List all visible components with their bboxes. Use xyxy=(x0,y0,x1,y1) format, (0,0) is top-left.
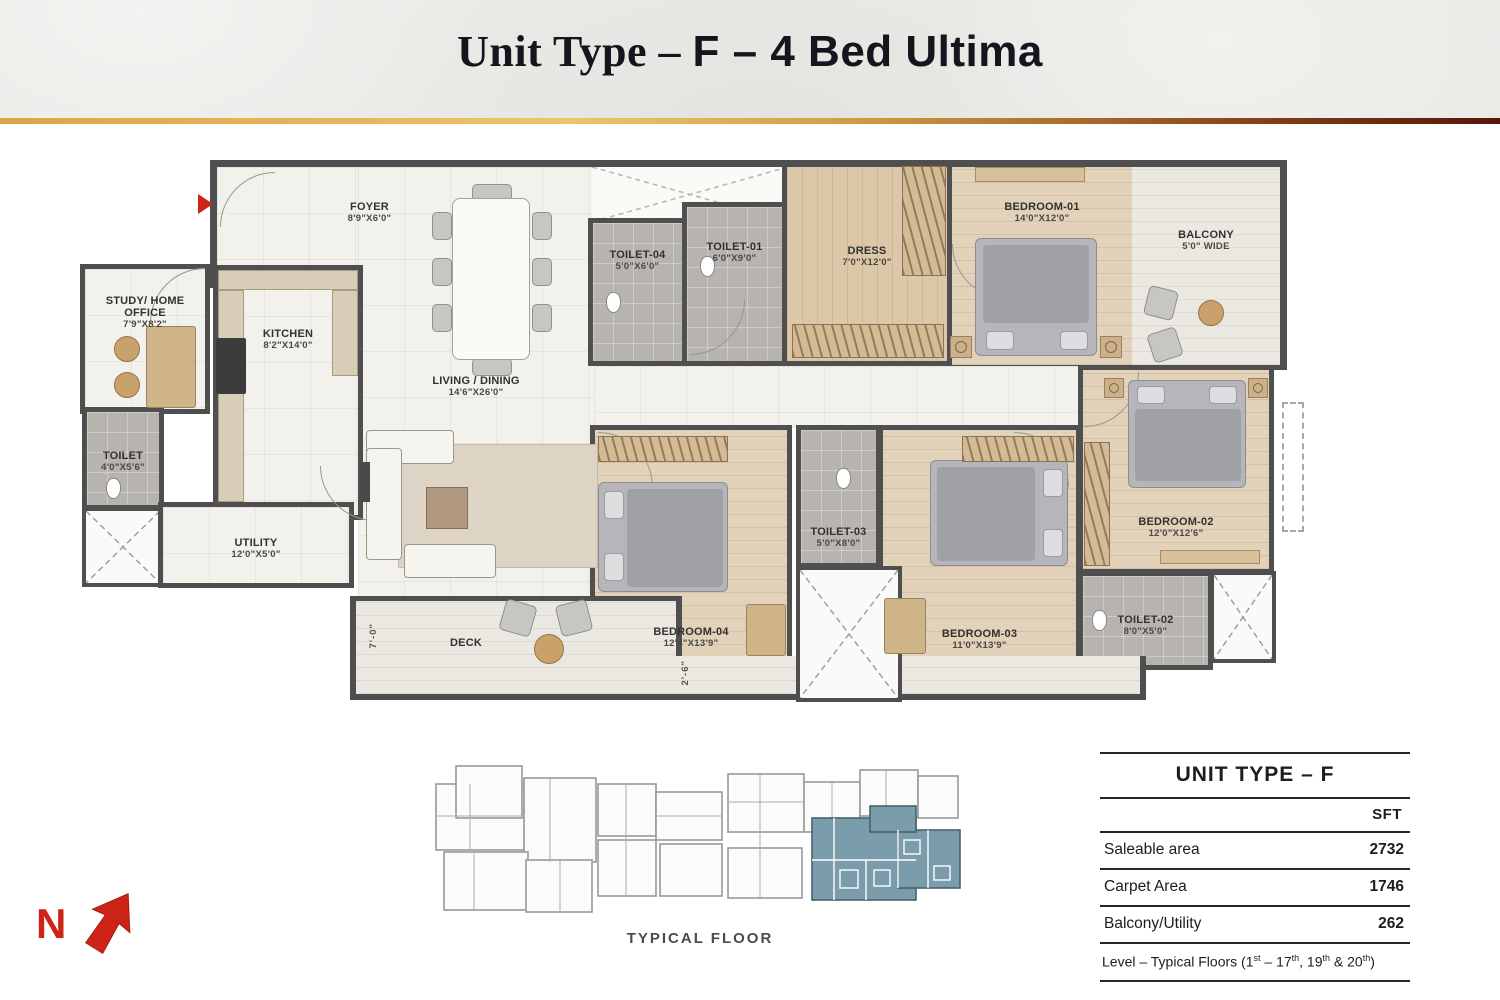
north-arrow-icon xyxy=(68,878,148,974)
room-label: TOILET4'0"X5'6" xyxy=(87,450,159,473)
wc-icon xyxy=(836,468,851,489)
corridor xyxy=(594,366,1080,428)
table-icon xyxy=(534,634,564,664)
chair-icon xyxy=(114,336,140,362)
room-label: BALCONY5'0" WIDE xyxy=(1132,229,1280,252)
row-value: 2732 xyxy=(1370,841,1404,859)
table-row: Balcony/Utility 262 xyxy=(1100,907,1410,944)
wardrobe-icon xyxy=(1084,442,1110,566)
nightstand-icon xyxy=(1248,378,1268,398)
bed-icon xyxy=(930,460,1068,566)
bed-icon xyxy=(598,482,728,592)
row-label: Saleable area xyxy=(1104,841,1200,859)
deck-strip-dim: 2'-6" xyxy=(680,660,691,686)
sofa-icon xyxy=(404,544,496,578)
kitchen-counter xyxy=(332,290,358,376)
stove-icon xyxy=(216,338,246,394)
room-label: TOILET-045'0"X6'0" xyxy=(593,249,682,272)
wc-icon xyxy=(606,292,621,313)
chair-icon xyxy=(114,372,140,398)
nightstand-icon xyxy=(1104,378,1124,398)
wardrobe-icon xyxy=(598,436,728,462)
table-icon xyxy=(1198,300,1224,326)
table-footer: Level – Typical Floors (1st – 17th, 19th… xyxy=(1100,944,1410,982)
room-label: DECK xyxy=(386,637,546,649)
nightstand-icon xyxy=(1100,336,1122,358)
tv-unit-icon xyxy=(360,462,370,502)
wc-icon xyxy=(106,478,121,499)
row-label: Carpet Area xyxy=(1104,878,1187,896)
coffee-table-icon xyxy=(426,487,468,529)
wardrobe-icon xyxy=(792,324,944,358)
study-table-icon xyxy=(146,326,196,408)
room-toilet-04: TOILET-045'0"X6'0" xyxy=(588,218,687,366)
room-utility: UTILITY12'0"X5'0" xyxy=(158,502,354,588)
north-label: N xyxy=(36,900,66,948)
desk-icon xyxy=(884,598,926,654)
bed-icon xyxy=(975,238,1097,356)
room-label: TOILET-035'0"X8'0" xyxy=(801,526,876,549)
table-row: Saleable area 2732 xyxy=(1100,833,1410,870)
shaft xyxy=(1210,571,1276,663)
shaft-cross-icon xyxy=(86,511,160,583)
area-table-title: UNIT TYPE – F xyxy=(1100,752,1410,799)
room-label: BEDROOM-0212'0"X12'6" xyxy=(1083,516,1269,539)
dining-set xyxy=(428,182,558,376)
floorplan-sheet: { "title": {"serif": "Unit Type – ", "sa… xyxy=(0,0,1500,1000)
wc-icon xyxy=(1092,610,1107,631)
area-table: UNIT TYPE – F SFT Saleable area 2732 Car… xyxy=(1100,752,1410,982)
bench-icon xyxy=(1160,550,1260,564)
wardrobe-icon xyxy=(975,167,1085,182)
wardrobe-icon xyxy=(902,166,946,276)
entry-arrow-icon xyxy=(198,194,213,214)
room-toilet-03: TOILET-035'0"X8'0" xyxy=(796,425,881,568)
table-row: Carpet Area 1746 xyxy=(1100,870,1410,907)
keyplan-caption: TYPICAL FLOOR xyxy=(555,930,845,947)
north-indicator: N xyxy=(34,878,154,978)
typical-floor-keyplan xyxy=(430,756,975,928)
nightstand-icon xyxy=(950,336,972,358)
row-value: 262 xyxy=(1378,915,1404,933)
wardrobe-icon xyxy=(962,436,1074,462)
row-value: 1746 xyxy=(1370,878,1404,896)
desk-icon xyxy=(746,604,786,656)
shaft xyxy=(82,507,164,587)
sofa-icon xyxy=(366,448,402,560)
room-label: LIVING / DINING14'6"X26'0" xyxy=(358,375,594,398)
room-label: BEDROOM-0114'0"X12'0" xyxy=(952,201,1132,224)
wc-icon xyxy=(700,256,715,277)
area-table-unit-header: SFT xyxy=(1100,799,1410,833)
kitchen-counter xyxy=(218,290,244,502)
row-label: Balcony/Utility xyxy=(1104,915,1201,933)
kitchen-counter xyxy=(218,270,358,290)
projection-outline xyxy=(1282,402,1304,532)
deck-width-dim: 7'-0" xyxy=(368,623,379,649)
shaft-cross-icon xyxy=(1214,575,1272,659)
bed-icon xyxy=(1128,380,1246,488)
room-toilet-study: TOILET4'0"X5'6" xyxy=(82,407,164,510)
room-label: UTILITY12'0"X5'0" xyxy=(163,537,349,560)
deck-strip: 2'-6" xyxy=(676,656,1146,700)
